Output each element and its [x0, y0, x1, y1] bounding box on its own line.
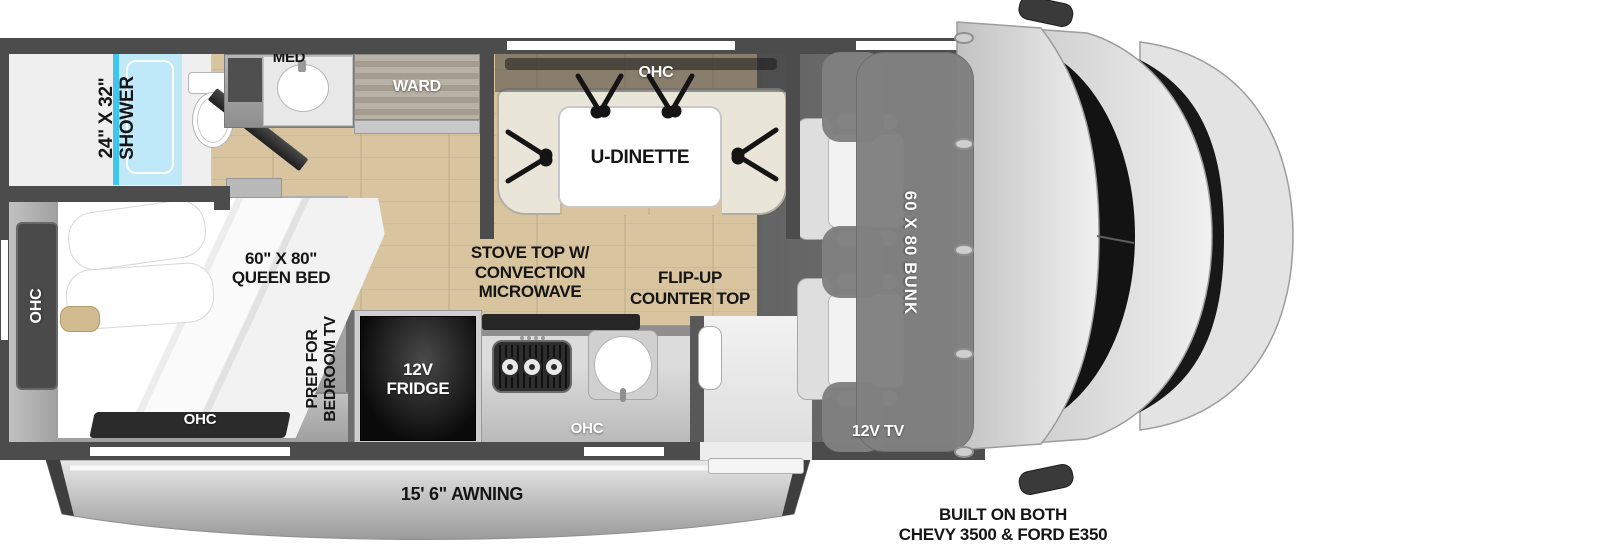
wardrobe: WARD: [354, 54, 480, 120]
stove-burners-icon: [492, 334, 572, 396]
awning-label: 15' 6" AWNING: [297, 485, 627, 504]
flip-up-counter-note: FLIP-UP COUNTER TOP: [600, 267, 780, 309]
side-mirror-bottom-icon: [1017, 463, 1075, 497]
ward-label: WARD: [393, 78, 441, 96]
queen-bed-label: 60" X 80" QUEEN BED: [201, 249, 361, 287]
entry-step: [708, 458, 804, 474]
fridge: 12V FRIDGE: [360, 316, 476, 441]
kitchen-sink-icon: [594, 336, 652, 394]
tv-prep-note: PREP FOR BEDROOM TV: [304, 316, 340, 421]
seatbelt-icons: [497, 60, 787, 220]
window-bottom-bedroom: [90, 447, 290, 456]
rivet-icon: [954, 244, 974, 256]
kitchen-faucet-icon: [620, 388, 626, 402]
rv-floorplan: 15' 6" AWNING 24" X 32" SHOWER MED WARD …: [0, 0, 1600, 558]
bedroom-ohc-side-label: OHC: [28, 289, 46, 324]
shower-label-wrap: 24" X 32" SHOWER: [94, 43, 140, 193]
med-cabinet-inset: [228, 58, 262, 102]
awning-shape: [36, 458, 820, 554]
bunk-label-wrap: 60 X 80 BUNK: [900, 168, 920, 338]
rivet-icon: [954, 32, 974, 44]
wall-dinette-left: [480, 47, 494, 239]
flip-up-counter: [698, 326, 722, 390]
window-left-bedroom: [1, 240, 8, 340]
stove-note: STOVE TOP W/ CONVECTION MICROWAVE: [440, 243, 620, 302]
side-mirror-top-icon: [1017, 0, 1075, 28]
rivet-icon: [954, 138, 974, 150]
cab-front: [945, 0, 1295, 500]
nightstand: [60, 306, 100, 332]
window-bottom-kitchen: [584, 447, 664, 456]
bedroom-ohc-side-wrap: OHC: [27, 266, 47, 346]
wall-dinette-right: [786, 47, 800, 239]
wall-shower-endcap: [214, 186, 230, 210]
chassis-note: BUILT ON BOTH CHEVY 3500 & FORD E350: [853, 505, 1153, 545]
microwave-cabinet: [482, 314, 640, 330]
bath-door-post: [226, 178, 282, 198]
cab-tv-label: 12V TV: [836, 423, 920, 441]
tv-prep-wrap: PREP FOR BEDROOM TV: [302, 294, 342, 444]
kitchen-ohc-label: OHC: [557, 420, 617, 438]
bunk-label: 60 X 80 BUNK: [901, 191, 919, 315]
wardrobe-shelf: [354, 120, 480, 134]
bedroom-ohc-rear-label: OHC: [168, 411, 232, 429]
fridge-label: 12V FRIDGE: [386, 360, 449, 398]
wall-shower: [0, 186, 230, 202]
rivet-icon: [954, 446, 974, 458]
rivet-icon: [954, 348, 974, 360]
shower-label: 24" X 32" SHOWER: [96, 76, 138, 160]
window-top-dinette: [507, 41, 735, 50]
